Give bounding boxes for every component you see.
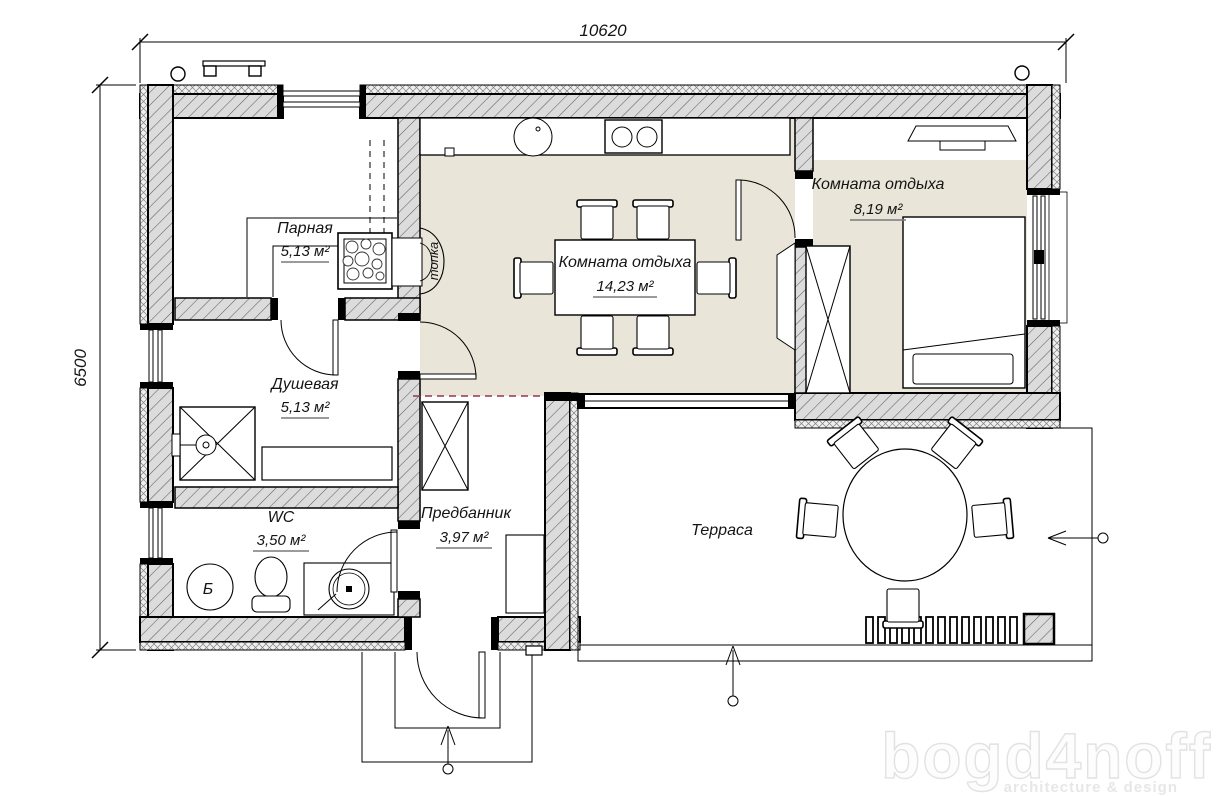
door-leaf-shower-lounge [420, 374, 476, 379]
dimension-top: 10620 [579, 21, 627, 40]
toilet [252, 557, 290, 612]
room-area-predbannik: 3,97 м² [440, 529, 490, 546]
round-table [843, 449, 967, 581]
dresser [908, 126, 1016, 141]
furnace-label: топка [426, 242, 441, 280]
door-leaf-wc [391, 530, 397, 592]
shower-bench [262, 447, 392, 480]
shower-head [196, 435, 216, 455]
vent-circle-left [171, 67, 185, 81]
room-label-wc: WC [268, 509, 295, 526]
room-area-lounge2: 8,19 м² [854, 201, 904, 218]
vent-circle-right [1015, 66, 1029, 80]
floor-plan-page: топка Б [0, 0, 1222, 796]
room-area-steam: 5,13 м² [281, 243, 331, 260]
room-label-lounge: Комната отдыха [559, 254, 692, 271]
wc-fixtures: Б [187, 557, 394, 615]
pillow [913, 354, 1013, 384]
room-area-shower: 5,13 м² [281, 399, 331, 416]
door-leaf-entrance [479, 652, 485, 718]
dimension-left: 6500 [71, 349, 90, 387]
room-area-wc: 3,50 м² [257, 532, 307, 549]
door-leaf-steam-room [333, 320, 338, 375]
bed [903, 217, 1025, 388]
tv [777, 243, 795, 350]
kitchen-sink [514, 118, 552, 156]
room-label-predbannik: Предбанник [421, 505, 512, 522]
floor-plan-drawing: топка Б [0, 0, 1222, 796]
terrace-furniture [796, 416, 1013, 628]
room-label-shower: Душевая [269, 376, 339, 393]
kitchen-counter [420, 118, 790, 156]
terrace-corner-post [1024, 614, 1054, 644]
stove-stones [343, 239, 385, 280]
room-label-terrace: Терраса [691, 522, 753, 539]
watermark-tagline: architecture & design [1004, 779, 1178, 796]
room-label-lounge2: Комната отдыха [812, 176, 945, 193]
watermark: bogd4noff architecture & design [881, 720, 1212, 796]
door-leaf-bedroom [736, 180, 741, 240]
bench [506, 535, 544, 613]
room-label-steam: Парная [277, 220, 333, 237]
lintel-symbol [203, 61, 265, 66]
washing-machine [304, 563, 394, 615]
boiler-label: Б [203, 581, 213, 598]
room-area-lounge: 14,23 м² [597, 278, 655, 295]
